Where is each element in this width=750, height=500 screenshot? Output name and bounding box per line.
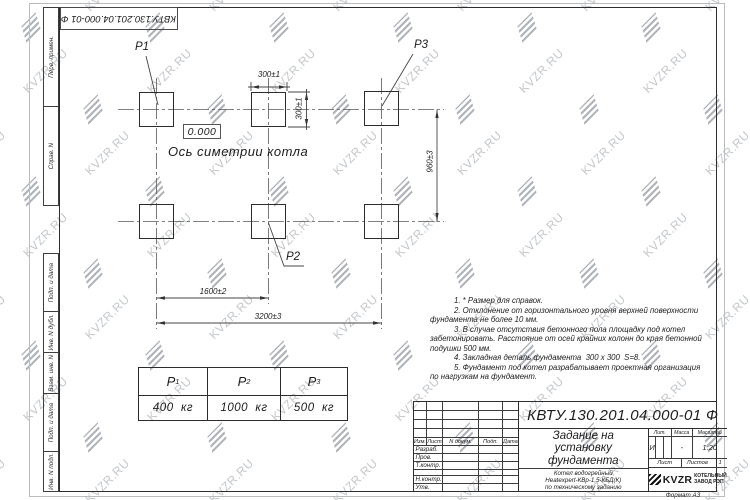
props-header-row: Лит. Масса Масштаб	[649, 429, 727, 437]
stamp-cell	[414, 429, 427, 437]
product-line: Котел водогрейный	[554, 470, 613, 477]
note-line: фундамента не более 10 мм.	[430, 315, 716, 325]
company-logo-cell: KVZR КОТЕЛЬНЫЙ ЗАВОД РЭП	[649, 468, 727, 491]
note-line: 1. * Размер для справок.	[430, 296, 716, 306]
sheets-label: Листов	[687, 460, 708, 466]
top-designation-box: КВТУ.130.201.04.000-01 Ф	[60, 7, 178, 30]
stamp-cell	[443, 476, 479, 483]
stamp-cell	[656, 437, 664, 458]
margin-label: Инв. N подл.	[48, 453, 55, 490]
margin-cell-inv-dubl: Инв. N дубл.	[43, 311, 59, 353]
stamp-cell	[443, 454, 479, 461]
product-line: по техническому заданию	[545, 484, 621, 491]
load-table-header-p1: Р1	[139, 368, 208, 396]
stamp-cell	[414, 411, 427, 419]
sheets-row: Лист Листов 1	[649, 459, 727, 468]
stamp-cell	[479, 402, 503, 410]
margin-cell-podp-data-1: Подп. и дата	[43, 253, 59, 312]
stamp-cell	[503, 484, 518, 491]
lit-value: И	[649, 437, 657, 458]
stamp-cell	[443, 462, 479, 469]
stamp-cell	[479, 462, 503, 469]
stamp-cell	[664, 437, 671, 458]
stamp-row-label	[414, 470, 443, 475]
title-block-props: Лит. Масса Масштаб И - 1:20	[649, 429, 727, 491]
change-table-row	[414, 429, 518, 437]
note-line: 4. Закладная деталь фундамента 300 x 300…	[430, 353, 716, 363]
margin-label: Инв. N дубл.	[48, 314, 55, 350]
note-line: забетонировать. Расстояние от осей крайн…	[430, 334, 716, 344]
top-designation-text: КВТУ.130.201.04.000-01 Ф	[61, 13, 176, 24]
lit-cells: И	[649, 437, 672, 458]
document-title-line: фундамента	[548, 455, 619, 468]
product-description: Котел водогрейный Heatexpert-КВр-1,5-КБД…	[519, 468, 648, 491]
stamp-cell	[427, 429, 443, 437]
axis-of-symmetry-label: Ось симетрии котла	[168, 144, 308, 159]
stamp-row-label: Утв.	[414, 484, 443, 491]
stamp-cell	[503, 462, 518, 469]
stamp-row-nkontr: Н.контр.	[414, 476, 518, 484]
mass-value: -	[672, 437, 693, 458]
stamp-header-podp: Подп.	[479, 438, 503, 445]
scale-label: Масштаб	[693, 429, 727, 436]
load-table-header-p3: Р3	[281, 368, 347, 396]
title-block: Изм. Лист N докум. Подп. Дата Разраб. Пр…	[413, 401, 717, 492]
stamp-cell	[503, 402, 518, 410]
stamp-header-list: Лист	[427, 438, 443, 445]
stamp-signature-rows: Разраб. Пров. Т.контр. Н.контр. Утв.	[414, 446, 518, 491]
stamp-row-label: Н.контр.	[414, 476, 443, 483]
load-header-base: Р	[238, 374, 247, 389]
sheets-cell: Листов 1	[682, 460, 727, 466]
document-title-line: установку	[555, 442, 612, 455]
margin-cell-inv-podl: Инв. N подл.	[43, 451, 59, 492]
foundation-pad-6	[364, 204, 399, 239]
dim-pad-width: 300±1	[249, 70, 289, 79]
kvzr-logo-subtitle: КОТЕЛЬНЫЙ ЗАВОД РЭП	[694, 474, 727, 485]
scale-value: 1:20	[693, 437, 727, 458]
title-block-main: Задание на установку фундамента Котел во…	[519, 429, 727, 491]
margin-label: Справ. N	[48, 143, 55, 169]
load-header-base: Р	[308, 374, 317, 389]
foundation-pad-2	[251, 92, 286, 127]
stamp-row-utv: Утв.	[414, 484, 518, 491]
sheets-value: 1	[718, 460, 721, 466]
note-line: 5. Фундамент под котел разрабатывает про…	[430, 363, 716, 373]
stamp-cell	[503, 470, 518, 475]
stamp-cell	[503, 411, 518, 419]
kvzr-logo-name: KVZR	[663, 474, 692, 486]
margin-label: Подп. и дата	[48, 263, 55, 302]
stamp-header-dokum: N докум.	[443, 438, 479, 445]
stamp-cell	[479, 446, 503, 453]
margin-label: Перв. примен.	[48, 36, 55, 78]
stamp-cell	[503, 446, 518, 453]
support-label-p2: Р2	[286, 251, 300, 263]
foundation-pad-4	[139, 204, 174, 239]
stamp-cell	[427, 420, 443, 428]
stamp-cell	[479, 429, 503, 437]
change-table-row	[414, 402, 518, 411]
stamp-cell	[443, 470, 479, 475]
mass-label: Масса	[672, 429, 693, 436]
load-header-sub: 2	[246, 377, 250, 386]
stamp-header-row: Изм. Лист N докум. Подп. Дата	[414, 438, 518, 446]
margin-cell-perv-primen: Перв. примен.	[43, 7, 59, 107]
stamp-cell	[427, 411, 443, 419]
dim-total-span: 3200±3	[228, 312, 308, 321]
load-table-header-p2: Р2	[208, 368, 281, 396]
change-table	[414, 402, 518, 438]
load-table: Р1 Р2 Р3 400 кг 1000 кг 500 кг	[138, 367, 348, 421]
stamp-cell	[479, 420, 503, 428]
load-value-p1: 400 кг	[139, 396, 208, 420]
note-line: по нагрузкам на фундамент.	[430, 372, 716, 382]
props-value-row: И - 1:20	[649, 437, 727, 459]
stamp-cell	[443, 411, 479, 419]
stamp-row-label: Разраб.	[414, 446, 443, 453]
note-line: 3. В случае отсутствия бетонного пола пл…	[430, 325, 716, 335]
stamp-cell	[443, 446, 479, 453]
load-header-sub: 3	[316, 377, 320, 386]
stamp-row-tkontr: Т.контр.	[414, 462, 518, 470]
notes-block: 1. * Размер для справок.2. Отклонение от…	[430, 296, 716, 382]
zero-elevation-value: 0.000	[188, 126, 217, 138]
stamp-cell	[443, 484, 479, 491]
margin-cell-sprav-n: Справ. N	[43, 106, 59, 206]
load-header-sub: 1	[175, 377, 179, 386]
stamp-cell	[443, 402, 479, 410]
margin-cell-vzam-inv: Взам. инв. N	[43, 352, 59, 394]
margin-label: Взам. инв. N	[48, 355, 55, 392]
load-value-p2: 1000 кг	[208, 396, 281, 420]
stamp-row-razrab: Разраб.	[414, 446, 518, 454]
stamp-cell	[443, 429, 479, 437]
document-title-line: Задание на	[553, 430, 614, 443]
stamp-cell	[503, 420, 518, 428]
stamp-row-prov: Пров.	[414, 454, 518, 462]
foundation-pad-1	[139, 92, 174, 127]
dim-pad-height: 300±1	[295, 89, 304, 129]
stamp-cell	[427, 402, 443, 410]
stamp-cell	[479, 454, 503, 461]
stamp-cell	[503, 454, 518, 461]
support-label-p1: Р1	[135, 41, 149, 53]
document-designation: КВТУ.130.201.04.000-01 Ф	[519, 402, 727, 429]
note-line: подушки 500 мм.	[430, 344, 716, 354]
title-block-right: КВТУ.130.201.04.000-01 Ф Задание на уста…	[519, 402, 727, 491]
document-title: Задание на установку фундамента	[519, 429, 648, 468]
support-label-p3: Р3	[414, 39, 428, 51]
stamp-cell	[503, 476, 518, 483]
load-header-base: Р	[167, 374, 176, 389]
stamp-row-label: Пров.	[414, 454, 443, 461]
title-block-left: Изм. Лист N докум. Подп. Дата Разраб. Пр…	[414, 402, 519, 491]
change-table-row	[414, 420, 518, 429]
dim-mid-span: 1600±2	[173, 287, 253, 296]
stamp-cell	[443, 420, 479, 428]
foundation-pad-5	[251, 204, 286, 239]
stamp-cell	[414, 402, 427, 410]
margin-label: Подп. и дата	[48, 403, 55, 442]
stamp-cell	[479, 411, 503, 419]
kvzr-logo-icon	[649, 474, 661, 485]
note-line: 2. Отклонение от горизонтального уровня …	[430, 306, 716, 316]
stamp-cell	[503, 429, 518, 437]
document-name-cell: Задание на установку фундамента Котел во…	[519, 429, 649, 491]
stamp-cell	[479, 470, 503, 475]
drawing-sheet-page: KVZR.RUKVZR.RUKVZR.RUKVZR.RUKVZR.RUKVZR.…	[0, 0, 750, 500]
product-line: Heatexpert-КВр-1,5-КБД(К)	[545, 477, 621, 484]
stamp-header-data: Дата	[503, 438, 518, 445]
sheet-label: Лист	[649, 459, 682, 467]
margin-cell-podp-data-2: Подп. и дата	[43, 393, 59, 452]
zero-elevation-box: 0.000	[183, 124, 221, 139]
change-table-row	[414, 411, 518, 420]
stamp-row-label: Т.контр.	[414, 462, 443, 469]
kvzr-logo-line2: ЗАВОД РЭП	[694, 480, 727, 486]
stamp-cell	[479, 476, 503, 483]
lit-label: Лит.	[649, 429, 672, 436]
format-label: Формат А3	[616, 492, 750, 499]
stamp-cell	[414, 420, 427, 428]
stamp-header-izm: Изм.	[414, 438, 427, 445]
stamp-cell	[479, 484, 503, 491]
foundation-pad-3	[364, 91, 399, 126]
dim-row-spacing: 960±3	[426, 142, 435, 182]
load-value-p3: 500 кг	[281, 396, 347, 420]
